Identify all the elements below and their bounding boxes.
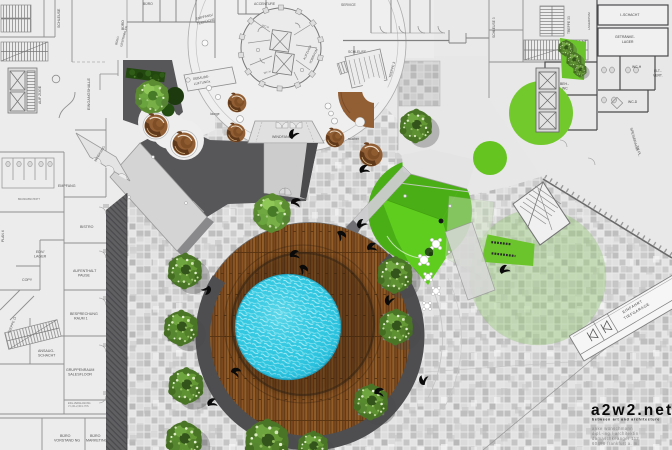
svg-text:EDV/: EDV/ bbox=[36, 250, 44, 254]
svg-text:BEH.-: BEH.- bbox=[560, 82, 569, 86]
svg-text:ANSAUG-: ANSAUG- bbox=[38, 349, 55, 353]
svg-text:BESPRECHUNG: BESPRECHUNG bbox=[70, 312, 98, 316]
svg-text:MARKETING: MARKETING bbox=[86, 439, 108, 443]
svg-text:ACCENTURE: ACCENTURE bbox=[254, 2, 276, 6]
svg-text:lounge: lounge bbox=[210, 112, 220, 116]
svg-text:LAGER: LAGER bbox=[622, 40, 634, 44]
svg-text:ELT.-: ELT.- bbox=[654, 69, 662, 73]
svg-text:PLAN 4: PLAN 4 bbox=[1, 230, 5, 242]
svg-text:COPY: COPY bbox=[22, 278, 33, 282]
svg-text:raucher: raucher bbox=[348, 137, 360, 141]
svg-text:RAUM 1: RAUM 1 bbox=[74, 317, 88, 321]
svg-text:VORSTAND NG: VORSTAND NG bbox=[54, 439, 80, 443]
svg-text:BRANDABSCHNITT: BRANDABSCHNITT bbox=[18, 198, 40, 201]
svg-text:SERVICE: SERVICE bbox=[341, 3, 357, 7]
svg-text:60488 frankfurt a. m.: 60488 frankfurt a. m. bbox=[592, 441, 639, 446]
svg-text:a2w2.net: a2w2.net bbox=[591, 402, 672, 419]
svg-text:between art and architecture: between art and architecture bbox=[592, 418, 660, 422]
svg-text:VERT.: VERT. bbox=[653, 74, 663, 78]
svg-text:WC-D: WC-D bbox=[628, 100, 638, 104]
svg-text:LAGER: LAGER bbox=[34, 255, 47, 259]
svg-text:SCHLEUSE: SCHLEUSE bbox=[57, 8, 61, 28]
svg-text:BÜRO: BÜRO bbox=[60, 434, 71, 438]
svg-text:SCHACHT: SCHACHT bbox=[38, 354, 56, 358]
svg-text:LAGER/PUM: LAGER/PUM bbox=[587, 12, 591, 30]
svg-text:GETRÄNKE-: GETRÄNKE- bbox=[615, 35, 635, 39]
svg-text:BÜRO: BÜRO bbox=[143, 2, 153, 6]
svg-text:EINGANGSHALLE: EINGANGSHALLE bbox=[87, 77, 91, 110]
svg-text:WINDFANG: WINDFANG bbox=[272, 135, 292, 139]
svg-text:PAUSE: PAUSE bbox=[78, 274, 91, 278]
svg-text:SCHLEUSE 3: SCHLEUSE 3 bbox=[492, 17, 496, 38]
svg-text:AUFENTHALT: AUFENTHALT bbox=[73, 269, 97, 273]
svg-text:TREPPE 33: TREPPE 33 bbox=[567, 16, 571, 34]
svg-text:EMPFANG: EMPFANG bbox=[58, 184, 76, 188]
svg-text:AUF ZÜGE: AUF ZÜGE bbox=[38, 85, 42, 104]
svg-text:V 1,00–2,30 G 3YS: V 1,00–2,30 G 3YS bbox=[68, 405, 89, 408]
svg-text:BÜRO: BÜRO bbox=[90, 434, 101, 438]
svg-text:SALESFLOOR: SALESFLOOR bbox=[68, 373, 92, 377]
svg-text:BISTRO: BISTRO bbox=[80, 225, 94, 229]
svg-text:WC-H: WC-H bbox=[632, 65, 642, 69]
svg-text:I.-SCHACHT: I.-SCHACHT bbox=[620, 13, 639, 17]
svg-text:GRUPPENRAUM: GRUPPENRAUM bbox=[66, 368, 94, 372]
